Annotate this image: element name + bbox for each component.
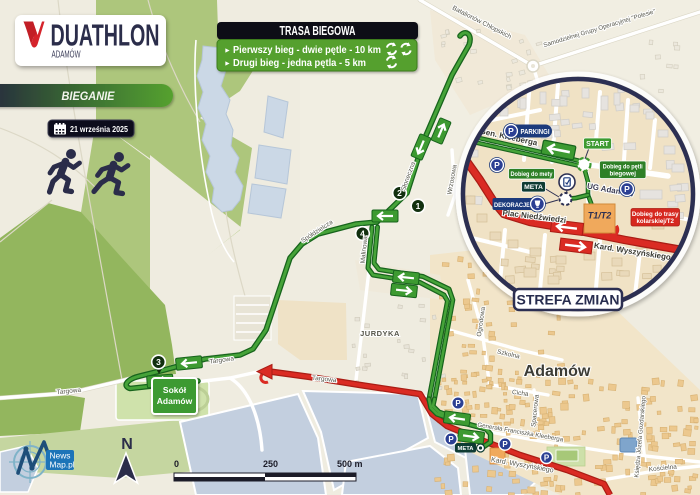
svg-text:P: P [502, 440, 508, 449]
svg-text:P: P [494, 160, 500, 170]
svg-text:Sokół: Sokół [163, 385, 187, 395]
svg-text:21 września 2025: 21 września 2025 [70, 124, 128, 134]
svg-text:META: META [524, 184, 543, 191]
svg-text:Dobieg do trasy: Dobieg do trasy [632, 211, 679, 218]
svg-text:T1/T2: T1/T2 [588, 211, 612, 221]
svg-text:DEKORACJE: DEKORACJE [494, 202, 530, 209]
svg-text:Pierwszy bieg - dwie pętle - 1: Pierwszy bieg - dwie pętle - 10 km [233, 44, 381, 56]
svg-text:500 m: 500 m [337, 459, 363, 469]
svg-text:PARKINGI: PARKINGI [521, 129, 550, 136]
svg-text:Adamów: Adamów [524, 363, 591, 380]
svg-text:Dobieg do mety: Dobieg do mety [511, 171, 553, 178]
svg-text:START: START [586, 141, 610, 148]
svg-text:P: P [448, 435, 454, 444]
svg-text:TRASA BIEGOWA: TRASA BIEGOWA [280, 23, 356, 38]
svg-text:STREFA ZMIAN: STREFA ZMIAN [517, 292, 620, 308]
svg-text:►: ► [224, 61, 231, 68]
svg-text:META: META [458, 446, 475, 452]
svg-text:P: P [508, 126, 514, 136]
svg-text:JURDYKA: JURDYKA [360, 329, 400, 338]
svg-text:1: 1 [416, 201, 421, 211]
svg-text:P: P [624, 184, 630, 194]
svg-text:250: 250 [263, 459, 278, 469]
svg-text:►: ► [224, 48, 231, 55]
svg-text:biegowej: biegowej [609, 171, 636, 178]
svg-text:Dobieg do pętli: Dobieg do pętli [603, 163, 643, 170]
svg-text:0: 0 [174, 459, 179, 469]
svg-text:kolarskiej/T2: kolarskiej/T2 [636, 218, 674, 225]
svg-text:BIEGANIE: BIEGANIE [62, 89, 116, 103]
svg-text:Adamów: Adamów [157, 396, 193, 406]
svg-text:N: N [121, 436, 133, 453]
svg-text:P: P [544, 454, 550, 463]
svg-text:Drugi bieg - jedna pętla - 5 k: Drugi bieg - jedna pętla - 5 km [233, 57, 366, 69]
svg-text:DUATHLON: DUATHLON [51, 18, 160, 53]
svg-text:P: P [455, 399, 461, 408]
svg-text:Map.pl: Map.pl [50, 460, 75, 470]
svg-text:3: 3 [156, 357, 161, 367]
svg-text:ADAMÓW: ADAMÓW [52, 48, 81, 61]
